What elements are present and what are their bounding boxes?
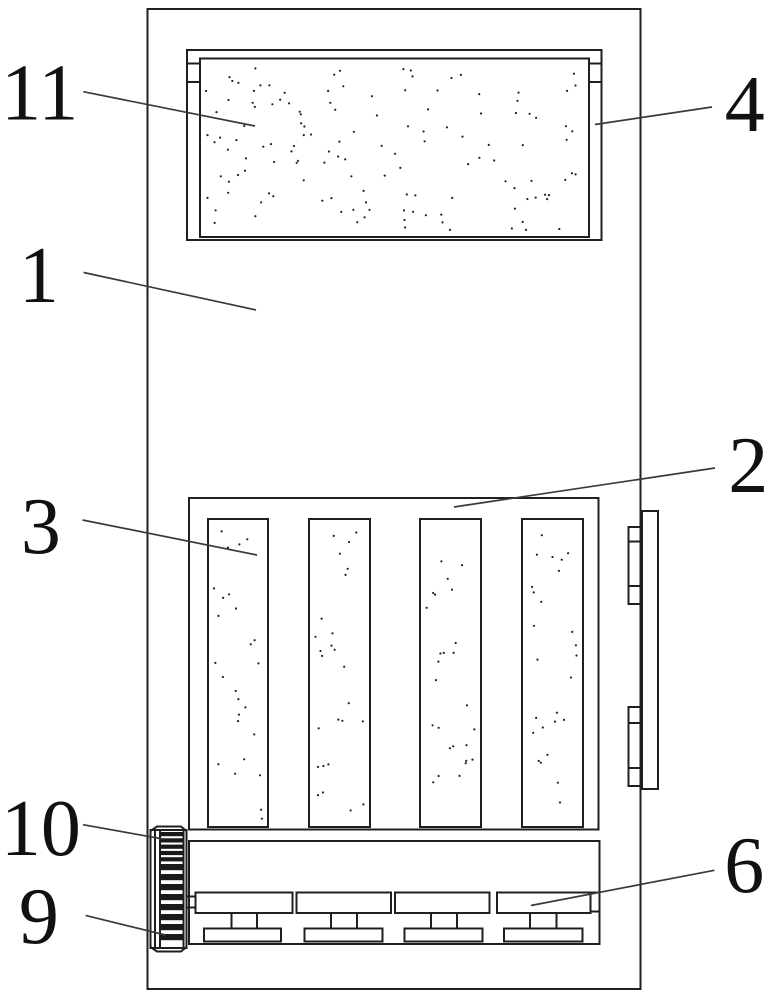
svg-text:6: 6 [724, 822, 764, 910]
svg-text:3: 3 [21, 483, 61, 571]
svg-text:1: 1 [19, 232, 59, 320]
svg-text:9: 9 [19, 873, 59, 961]
svg-text:10: 10 [1, 785, 81, 873]
svg-text:11: 11 [1, 49, 78, 137]
svg-text:4: 4 [725, 61, 765, 149]
svg-text:2: 2 [728, 422, 768, 510]
